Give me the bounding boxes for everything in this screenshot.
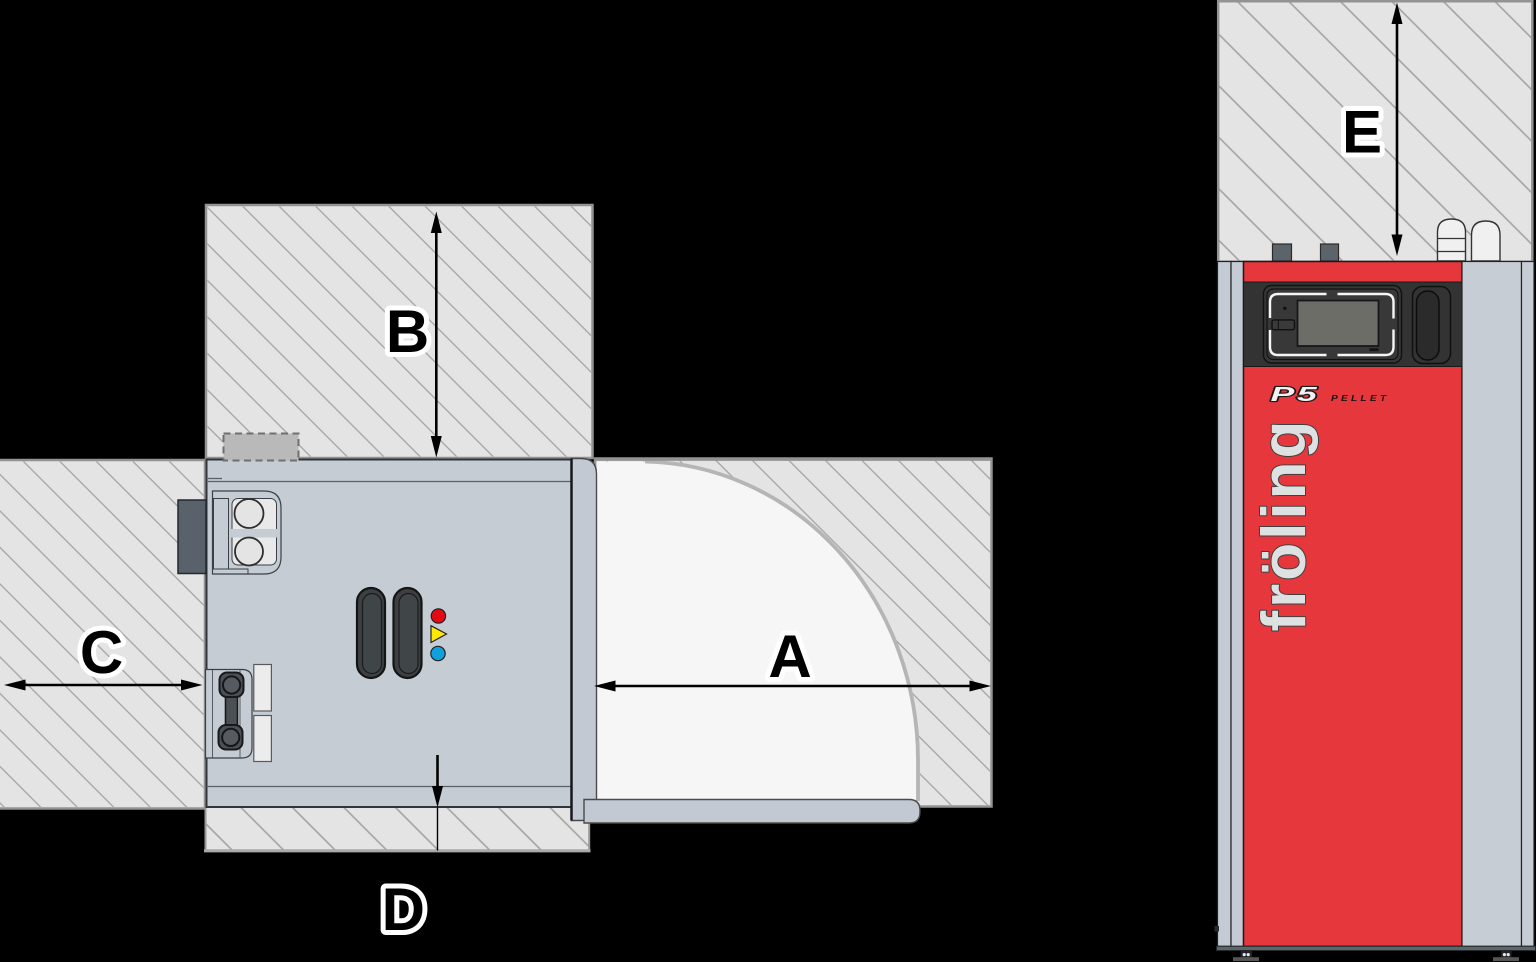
svg-text:E: E [1342,98,1382,165]
svg-text:A: A [768,623,811,690]
svg-text:B: B [386,298,429,365]
svg-text:PELLET: PELLET [1331,394,1389,403]
svg-text:P5: P5 [1271,383,1320,406]
svg-text:D: D [382,876,425,943]
svg-text:C: C [80,619,123,686]
svg-text:fröling: fröling [1250,418,1319,632]
